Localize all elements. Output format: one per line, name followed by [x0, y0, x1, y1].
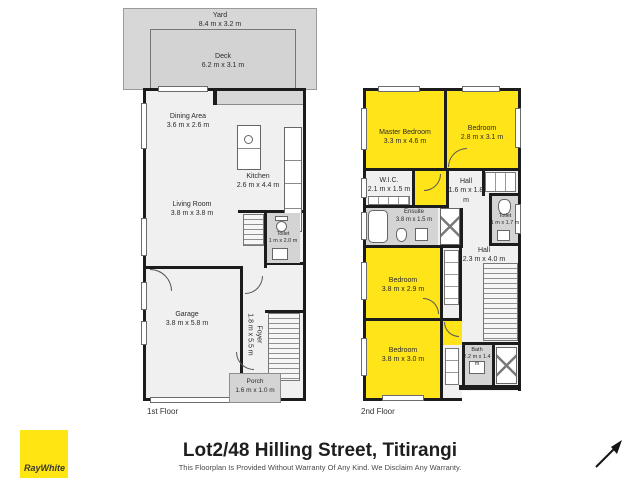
room-label-garage: Garage 3.8 m x 5.8 m: [157, 310, 217, 329]
north-arrow-icon: [588, 436, 628, 472]
raywhite-logo-text: RayWhite: [24, 463, 65, 473]
sink-icon: [415, 228, 428, 241]
wall: [460, 208, 463, 248]
room-label-toilet-1: Toilet 1 m x 2.0 m: [266, 231, 300, 245]
room-label-master: Master Bedroom 3.3 m x 4.6 m: [368, 128, 442, 147]
window: [141, 103, 147, 149]
floor-label-1: 1st Floor: [147, 407, 178, 416]
window: [378, 86, 420, 92]
stairs-1st-floor: [243, 214, 264, 246]
window: [462, 86, 500, 92]
room-label-ensuite: Ensuite 3.8 m x 1.5 m: [390, 209, 438, 225]
wall: [459, 385, 521, 390]
room-label-bedroom-top: Bedroom 2.8 m x 3.1 m: [451, 124, 513, 143]
room-label-living: Living Room 3.8 m x 3.8 m: [162, 200, 222, 219]
island-divider: [238, 148, 260, 149]
window: [158, 86, 208, 92]
room-label-hall-main: Hall 2.3 m x 4.0 m: [458, 246, 510, 265]
wardrobe: [444, 250, 459, 305]
room-label-kitchen: Kitchen 2.6 m x 4.4 m: [228, 172, 288, 191]
counter-divider: [285, 160, 301, 161]
room-label-deck: Deck 6.2 m x 3.1 m: [150, 52, 296, 71]
room-label-yard: Yard 8.4 m x 3.2 m: [123, 11, 317, 30]
window: [141, 282, 147, 310]
window: [361, 108, 367, 150]
room-label-bedroom-bottom: Bedroom 3.8 m x 3.0 m: [371, 346, 435, 365]
sink-icon: [272, 248, 288, 260]
wall: [213, 91, 217, 105]
window: [382, 395, 424, 401]
window: [141, 218, 147, 256]
stairs-2nd-floor: [483, 263, 518, 341]
toilet-icon: [396, 228, 407, 242]
window: [361, 262, 367, 300]
garage-door: [150, 397, 235, 403]
stairs-foyer: [268, 313, 300, 381]
wall: [366, 318, 462, 321]
wall: [366, 245, 463, 248]
wall: [412, 171, 415, 207]
room-label-dining: Dining Area 3.6 m x 2.6 m: [158, 112, 218, 131]
wardrobe: [485, 172, 516, 192]
wardrobe: [445, 348, 459, 385]
room-label-hall-top: Hall 1.6 m x 1.8 m: [446, 177, 486, 205]
wall: [217, 104, 303, 105]
window: [361, 338, 367, 376]
room-label-bath: Bath 2.2 m x 1.4 m: [461, 347, 493, 368]
wall: [366, 168, 518, 171]
wall: [440, 248, 443, 318]
raywhite-logo: RayWhite: [20, 430, 68, 478]
wall: [489, 193, 518, 196]
window: [141, 321, 147, 345]
wall: [444, 91, 447, 169]
floor-label-2: 2nd Floor: [361, 407, 395, 416]
house-notch: [462, 391, 524, 402]
room-label-bedroom-mid: Bedroom 3.8 m x 2.9 m: [371, 276, 435, 295]
disclaimer-text: This Floorplan Is Provided Without Warra…: [0, 463, 640, 472]
shower-box: [440, 208, 460, 245]
room-label-toilet-2: Toilet 1 m x 1.7 m: [490, 213, 520, 227]
sink-icon: [244, 135, 253, 144]
void-strip: [217, 91, 303, 105]
wall: [440, 321, 443, 398]
wardrobe: [368, 196, 410, 205]
wall: [143, 266, 243, 269]
floorplan-canvas: Yard 8.4 m x 3.2 m Deck 6.2 m x 3.1 m To…: [0, 0, 640, 480]
window: [361, 212, 367, 240]
shower-box: [496, 347, 517, 384]
bathtub-icon: [368, 210, 388, 243]
wall: [366, 205, 449, 208]
room-label-wic: W.I.C. 2.1 m x 1.5 m: [366, 176, 412, 195]
sink-icon: [497, 230, 510, 241]
window: [515, 108, 521, 148]
counter-divider: [285, 208, 301, 209]
room-label-porch: Porch 1.6 m x 1.0 m: [229, 378, 281, 396]
page-title: Lot2/48 Hilling Street, Titirangi: [0, 440, 640, 462]
